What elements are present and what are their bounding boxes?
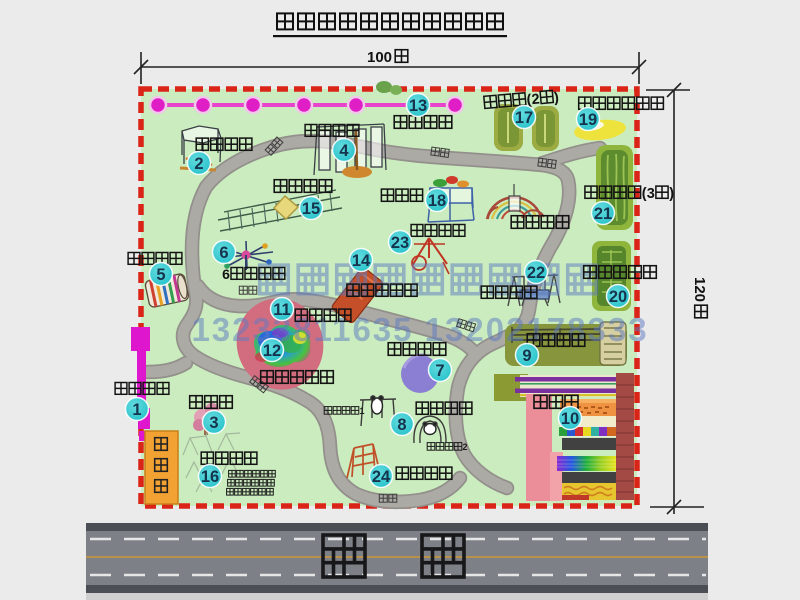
svg-text:15: 15 bbox=[302, 200, 320, 218]
svg-text:2: 2 bbox=[531, 91, 540, 108]
svg-text:9: 9 bbox=[522, 347, 531, 365]
svg-text:2: 2 bbox=[194, 155, 203, 173]
svg-text:10: 10 bbox=[561, 410, 579, 428]
svg-text:5: 5 bbox=[156, 266, 165, 284]
svg-text:1: 1 bbox=[360, 406, 365, 416]
svg-text:19: 19 bbox=[579, 111, 597, 129]
svg-text:13: 13 bbox=[409, 97, 427, 115]
svg-text:): ) bbox=[669, 186, 674, 202]
svg-text:17: 17 bbox=[515, 109, 533, 127]
svg-text:12: 12 bbox=[263, 342, 281, 360]
svg-text:4: 4 bbox=[339, 142, 349, 160]
svg-text:1: 1 bbox=[132, 401, 141, 419]
svg-text:24: 24 bbox=[372, 468, 391, 486]
svg-text:21: 21 bbox=[594, 205, 612, 223]
svg-text:100: 100 bbox=[367, 49, 392, 66]
svg-text:3: 3 bbox=[209, 414, 218, 432]
svg-text:2: 2 bbox=[463, 442, 468, 452]
svg-text:3: 3 bbox=[647, 186, 655, 202]
svg-text:22: 22 bbox=[527, 264, 545, 282]
svg-text:7: 7 bbox=[435, 362, 444, 380]
svg-text:120: 120 bbox=[691, 277, 708, 302]
svg-text:11: 11 bbox=[273, 301, 290, 319]
svg-text:6: 6 bbox=[222, 266, 230, 282]
svg-text:18: 18 bbox=[428, 192, 446, 210]
svg-text:23: 23 bbox=[391, 234, 409, 252]
svg-text:20: 20 bbox=[609, 288, 627, 306]
svg-text:8: 8 bbox=[397, 416, 406, 434]
svg-text:16: 16 bbox=[201, 468, 219, 486]
svg-text:6: 6 bbox=[219, 244, 228, 262]
svg-text:14: 14 bbox=[352, 252, 371, 270]
